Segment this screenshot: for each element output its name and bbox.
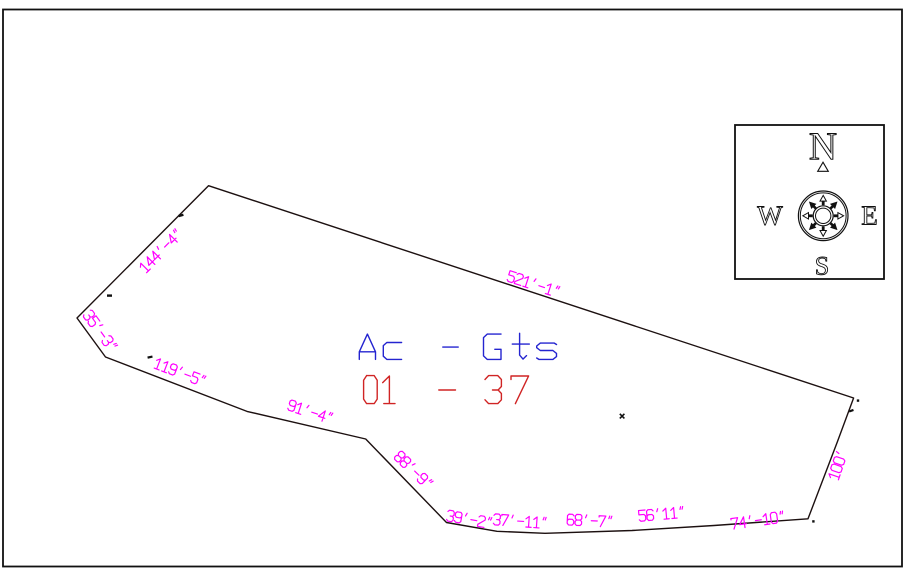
svg-text:E: E xyxy=(861,200,878,230)
svg-text:S: S xyxy=(815,252,829,281)
svg-text:W: W xyxy=(757,201,783,231)
